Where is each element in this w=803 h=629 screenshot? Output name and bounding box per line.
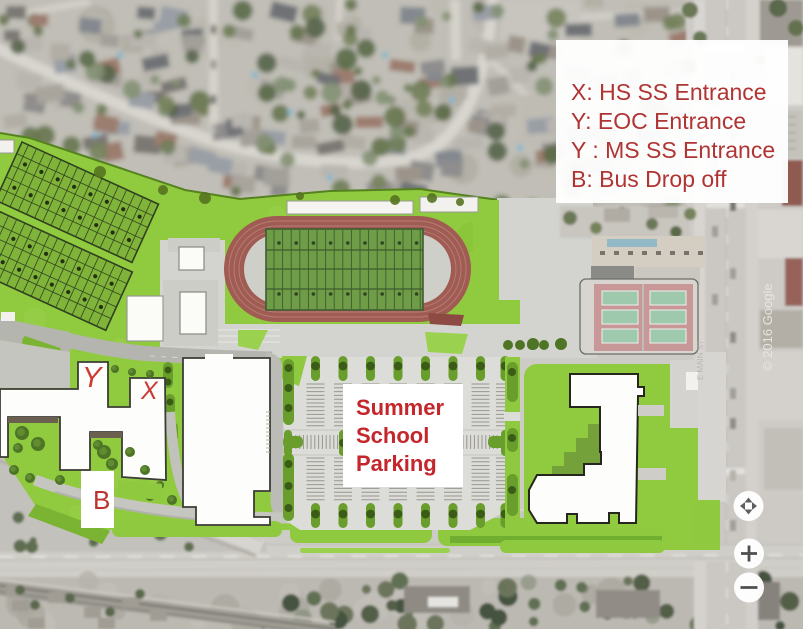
svg-text:X: X	[140, 377, 159, 405]
svg-text:© 2016 Google: © 2016 Google	[760, 283, 775, 371]
svg-text:Y : MS SS Entrance: Y : MS SS Entrance	[571, 137, 775, 163]
svg-text:Y: EOC Entrance: Y: EOC Entrance	[571, 108, 746, 134]
svg-text:B: Bus Drop off: B: Bus Drop off	[571, 166, 727, 192]
svg-text:B: B	[93, 485, 110, 515]
svg-text:E MAIN ST: E MAIN ST	[696, 340, 705, 380]
svg-text:X: HS SS Entrance: X: HS SS Entrance	[571, 79, 767, 105]
svg-text:Y: Y	[82, 362, 104, 394]
svg-text:School: School	[356, 423, 429, 448]
svg-text:Summer: Summer	[356, 395, 444, 420]
svg-text:Parking: Parking	[356, 451, 437, 476]
